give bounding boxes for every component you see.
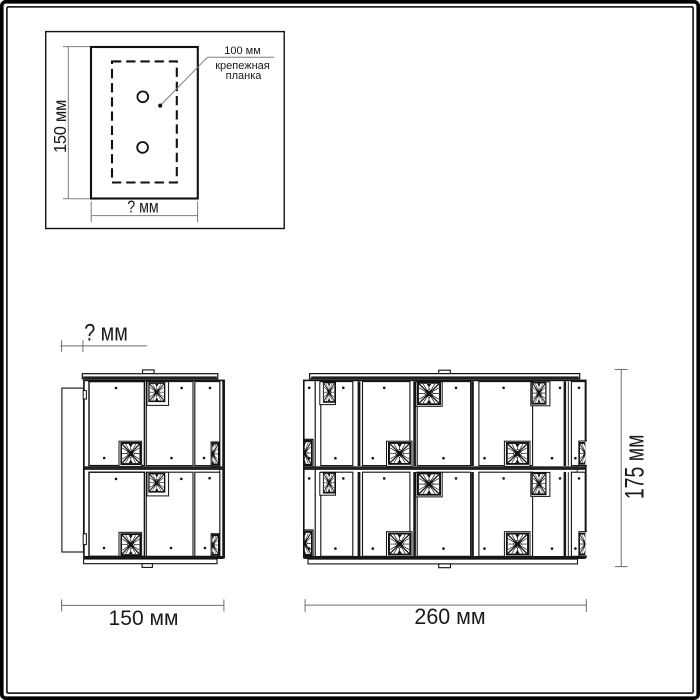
svg-text:150 мм: 150 мм [109, 606, 179, 630]
svg-text:100 мм: 100 мм [224, 45, 261, 57]
svg-text:260 мм: 260 мм [414, 604, 485, 629]
svg-text:планка: планка [226, 70, 263, 82]
svg-text:150 мм: 150 мм [51, 100, 71, 153]
svg-text:? мм: ? мм [84, 319, 128, 346]
svg-text:175 мм: 175 мм [619, 434, 649, 499]
svg-text:? мм: ? мм [127, 198, 158, 217]
